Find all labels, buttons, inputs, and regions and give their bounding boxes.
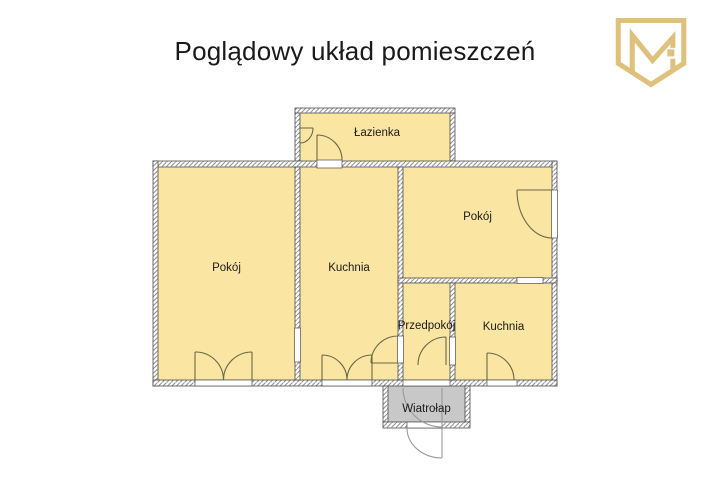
label-pokoj-right: Pokój (463, 211, 492, 223)
floor-plan: Łazienka Pokój Kuchnia Pokój Przedpokój … (0, 0, 710, 477)
wall-bathroom-left (295, 113, 300, 161)
opening-pokoj-left-balcony (195, 380, 252, 386)
opening-przedpokoj-kuchnia (450, 337, 456, 365)
label-kuchnia-right: Kuchnia (483, 321, 525, 333)
wall-main-top (153, 161, 557, 167)
label-wiatrolap: Wiatrołap (402, 403, 451, 415)
opening-kuchnia-balcony (322, 380, 372, 386)
label-pokoj-left: Pokój (212, 262, 241, 274)
label-przedpokoj: Przedpokój (398, 320, 456, 332)
opening-pokoj-right-door (552, 190, 558, 238)
wall-vestibule-right (465, 386, 470, 422)
wall-bathroom-right (450, 113, 455, 161)
wall-main-left (153, 161, 158, 386)
opening-pokoj-kuchnia (295, 328, 301, 362)
door-arc-entrance (407, 428, 442, 458)
wall-vestibule-left (383, 386, 388, 422)
opening-kuchnia-przedpokoj (398, 336, 404, 363)
opening-przedpokoj-wiatrolap (403, 380, 450, 386)
opening-pokoj-kuchnia-right (517, 278, 543, 284)
opening-bathroom-door (317, 160, 342, 168)
label-kuchnia-center: Kuchnia (328, 262, 370, 274)
label-lazienka: Łazienka (354, 127, 401, 139)
opening-kuchnia-right-door (487, 380, 517, 386)
wall-bathroom-top (295, 108, 455, 113)
